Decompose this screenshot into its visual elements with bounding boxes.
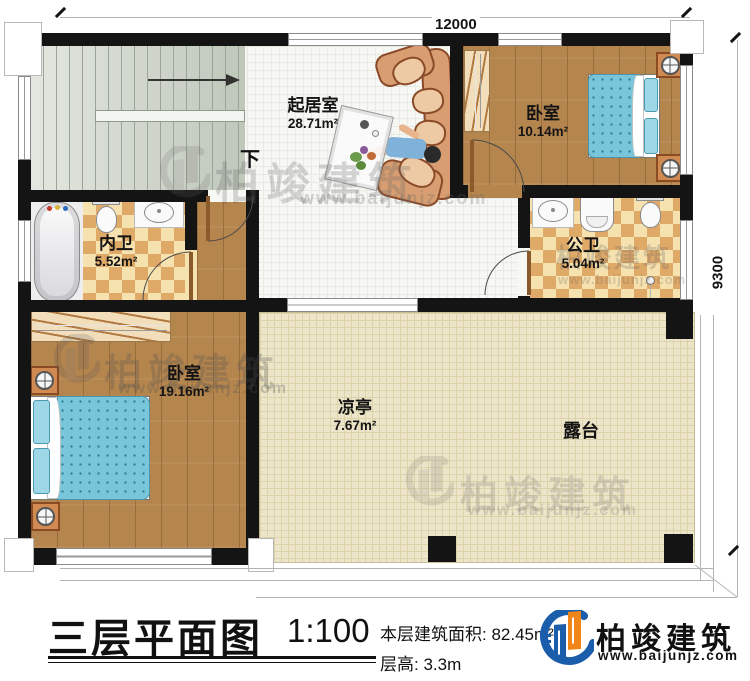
floor-area-label: 本层建筑面积: bbox=[380, 625, 487, 644]
brand-logo-icon bbox=[538, 610, 594, 674]
floor-plan-image: 柏竣建筑 www.baijunjz.com 柏竣建筑 www.baijunjz.… bbox=[0, 0, 750, 681]
room-name: 露台 bbox=[563, 421, 599, 442]
room-name: 卧室 bbox=[518, 104, 568, 124]
floor-height-info: 层高: 3.3m bbox=[380, 650, 461, 675]
watermark-url: www.baijunjz.com bbox=[558, 272, 686, 287]
room-name: 凉亭 bbox=[334, 398, 377, 418]
floor-height-label: 层高: bbox=[380, 655, 419, 674]
room-area: 5.52m² bbox=[95, 254, 138, 270]
room-label-pavilion: 凉亭 7.67m² bbox=[334, 398, 377, 433]
room-name: 卧室 bbox=[159, 364, 209, 384]
stair-direction-label: 下 bbox=[240, 143, 260, 172]
room-area: 10.14m² bbox=[518, 124, 568, 140]
room-label-terrace: 露台 bbox=[563, 421, 599, 442]
watermark-logo-icon bbox=[52, 334, 100, 392]
room-area: 28.71m² bbox=[288, 116, 339, 132]
door-arc bbox=[143, 252, 191, 300]
floor-height-value: 3.3m bbox=[423, 655, 461, 674]
watermark-logo-icon bbox=[158, 146, 210, 206]
room-name: 内卫 bbox=[95, 234, 138, 254]
floor-area-info: 本层建筑面积: 82.45m² bbox=[380, 620, 554, 645]
title-underline-thin bbox=[48, 662, 376, 663]
room-area: 7.67m² bbox=[334, 418, 377, 434]
room-label-bedroom2: 卧室 19.16m² bbox=[159, 364, 209, 399]
room-area: 19.16m² bbox=[159, 384, 209, 400]
eave-diagonal bbox=[695, 565, 737, 597]
room-label-living: 起居室 28.71m² bbox=[288, 96, 339, 131]
room-name: 起居室 bbox=[288, 96, 339, 116]
dimension-right: 9300 bbox=[710, 243, 727, 303]
watermark-url: www.baijunjz.com bbox=[468, 502, 638, 520]
plan-scale: 1:100 bbox=[287, 612, 370, 650]
room-label-public-bath: 公卫 5.04m² bbox=[562, 236, 605, 271]
stair-arrow-head bbox=[226, 74, 240, 86]
brand-url: www.baijunjz.com bbox=[598, 648, 739, 663]
room-label-bedroom1: 卧室 10.14m² bbox=[518, 104, 568, 139]
room-area: 5.04m² bbox=[562, 256, 605, 272]
room-label-private-bath: 内卫 5.52m² bbox=[95, 234, 138, 269]
door-arc bbox=[485, 251, 529, 295]
title-underline bbox=[48, 656, 376, 659]
door-arc bbox=[472, 140, 524, 192]
plan-linework bbox=[0, 0, 750, 681]
watermark-url: www.baijunjz.com bbox=[300, 188, 487, 209]
dimension-top: 12000 bbox=[432, 16, 480, 33]
watermark-logo-icon bbox=[404, 456, 454, 514]
room-name: 公卫 bbox=[562, 236, 605, 256]
